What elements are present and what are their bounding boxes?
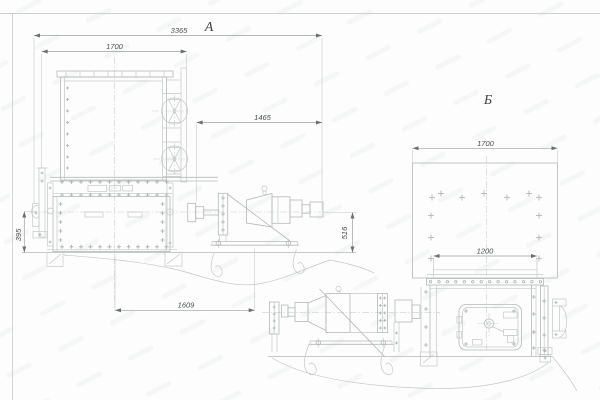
drawing-svg: 3365 1700 1465 395 516 1609 xyxy=(0,0,600,400)
dim-text-hopper-width-b: 1700 xyxy=(477,139,495,148)
dim-text-hopper-width-a: 1700 xyxy=(106,42,124,51)
dim-text-overall-length: 3365 xyxy=(171,26,189,35)
dim-text-axis-height: 516 xyxy=(340,226,349,239)
view-a-label: А xyxy=(204,20,214,35)
dim-text-support-height: 395 xyxy=(14,228,23,241)
dim-text-drive-offset: 1609 xyxy=(178,301,196,310)
view-b-label: Б xyxy=(483,93,492,108)
dim-text-drive-span: 1465 xyxy=(254,113,272,122)
technical-drawing-sheet: 3365 1700 1465 395 516 1609 xyxy=(0,0,600,400)
dim-text-outlet-width: 1200 xyxy=(477,246,495,255)
